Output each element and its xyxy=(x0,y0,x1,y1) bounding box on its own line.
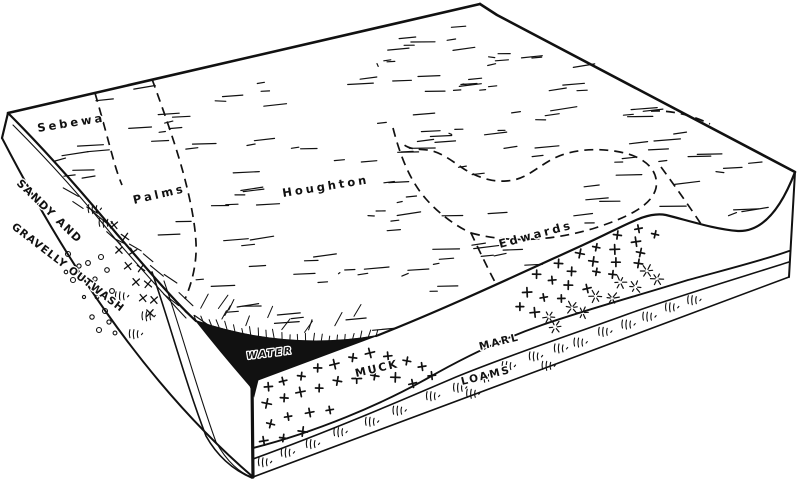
block-silhouette xyxy=(2,4,795,477)
front-left-corner-edge xyxy=(252,380,253,477)
diagram-canvas: Sebewa Palms Houghton Edwards SANDY AND … xyxy=(0,0,800,484)
soil-block-diagram: Sebewa Palms Houghton Edwards SANDY AND … xyxy=(0,0,800,484)
